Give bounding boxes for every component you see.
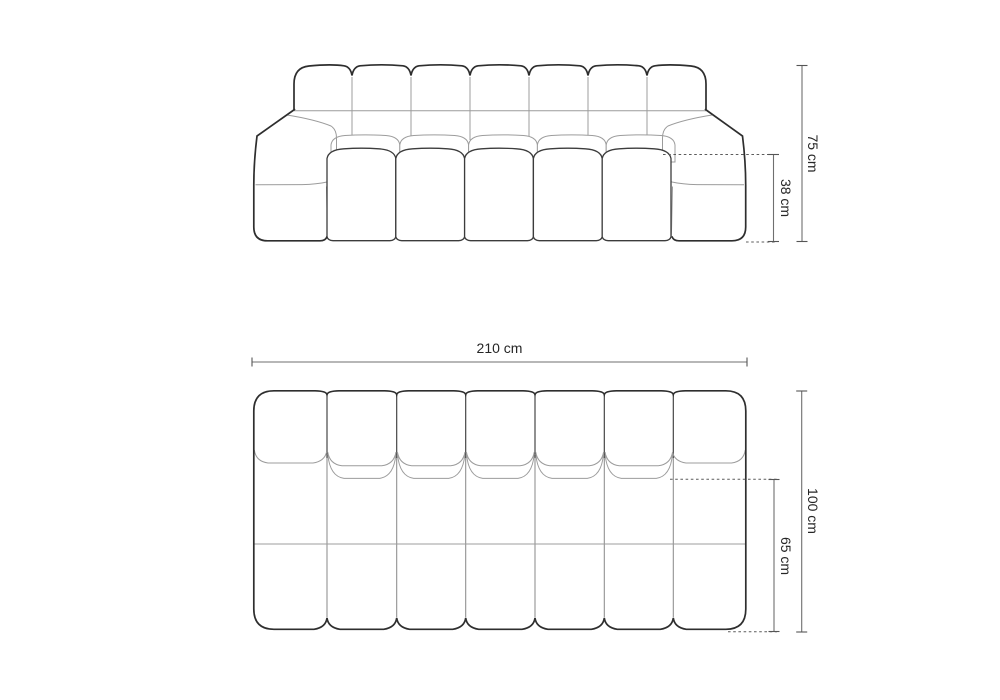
front-outline-right [672, 110, 746, 241]
front-seat-cushions [327, 148, 671, 240]
plan-dividers-seat-rows [327, 458, 673, 618]
seat-height-label: 38 cm [778, 179, 794, 217]
plan-dividers-back-row [327, 395, 673, 459]
front-view-dimensions: 75 cm 38 cm [663, 66, 821, 243]
seat-depth-label: 65 cm [778, 537, 794, 575]
plan-outline [254, 391, 746, 630]
right-armrest-detail [663, 115, 745, 236]
back-cushion-dividers [352, 77, 647, 140]
total-depth-label: 100 cm [805, 488, 821, 534]
left-armrest-detail [256, 115, 337, 236]
plan-view-dimensions: 210 cm 100 cm 65 cm [252, 340, 821, 632]
total-height-label: 75 cm [805, 134, 821, 172]
sofa-technical-drawing: 75 cm 38 cm [0, 0, 1000, 700]
back-cushions-outline [294, 65, 706, 110]
front-elevation-view: 75 cm 38 cm [254, 65, 821, 242]
drawing-canvas: 75 cm 38 cm [0, 0, 1000, 700]
top-plan-view: 210 cm 100 cm 65 cm [252, 340, 821, 632]
front-outline-left [254, 110, 327, 241]
total-width-label: 210 cm [477, 340, 523, 356]
plan-back-cushion-arcs [254, 450, 745, 478]
